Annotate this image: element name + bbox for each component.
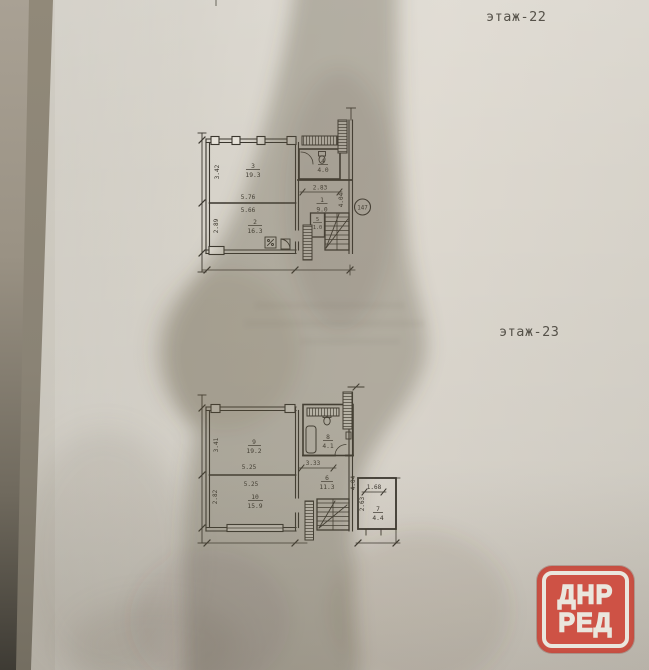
dnr-red-watermark: ДНР РЕД xyxy=(537,566,634,653)
bleed-through-text xyxy=(245,320,425,327)
photographed-floorplan-document: этаж-22 этаж-23 xyxy=(0,0,649,670)
bleed-through-text xyxy=(255,302,405,309)
bleed-through-text xyxy=(300,338,400,345)
watermark-line1: ДНР xyxy=(558,582,614,610)
watermark-line2: РЕД xyxy=(558,610,612,638)
watermark-text: ДНР РЕД xyxy=(537,563,634,657)
